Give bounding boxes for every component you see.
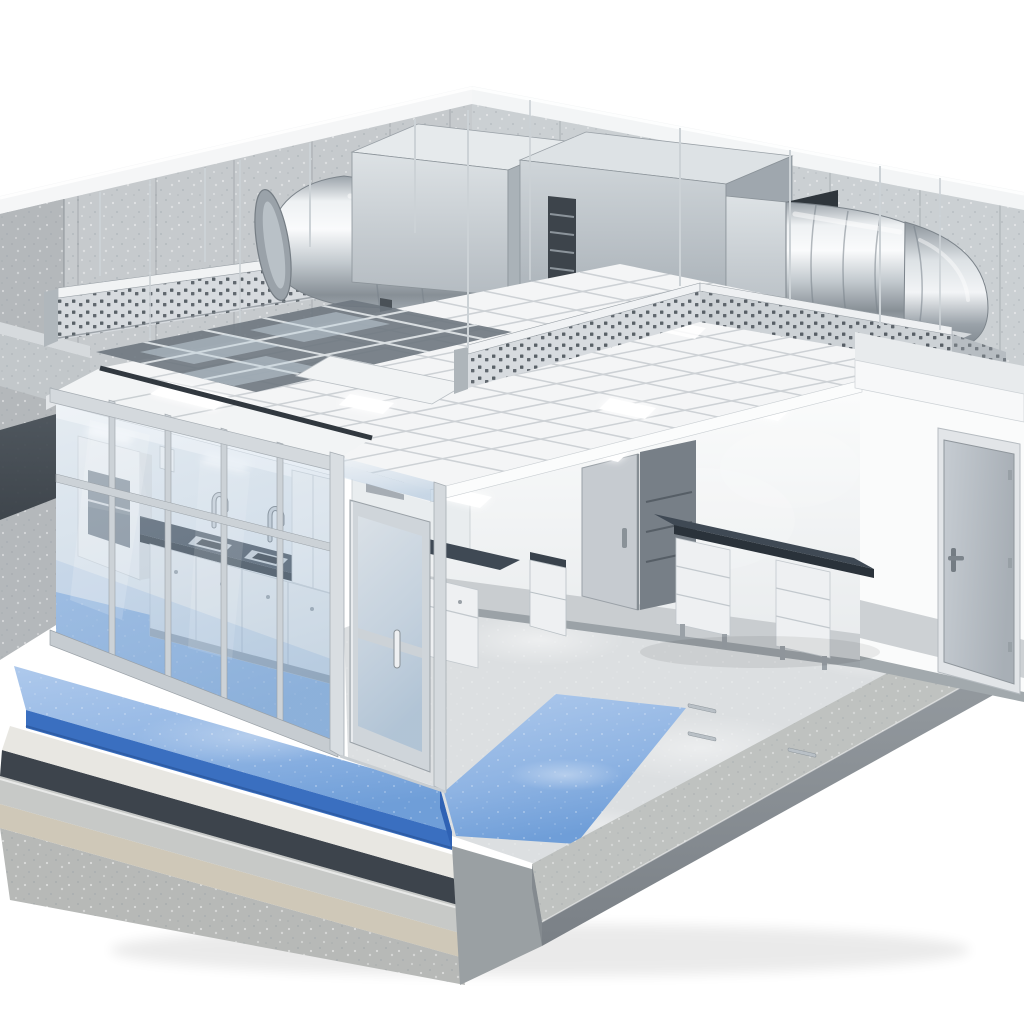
blue-strip-gloss (507, 759, 623, 791)
interior-door-handle (622, 528, 627, 548)
wall-light-glow (720, 428, 860, 508)
building-cutaway (0, 0, 1024, 1024)
door-jamb (434, 482, 446, 792)
knob (458, 600, 462, 604)
exterior-steel-door (938, 428, 1020, 694)
interior-door-leaf (582, 454, 638, 610)
tray-end-cap (454, 347, 468, 394)
glass-door (350, 500, 430, 772)
cleanroom-cutaway-figure (0, 0, 1024, 1024)
tray-end-cap (44, 289, 58, 347)
glass-door-handle (394, 630, 400, 668)
desk-shadow (640, 636, 880, 668)
corner-post (330, 452, 344, 758)
side-cabinet (530, 552, 566, 636)
cabinet-front (530, 560, 566, 636)
pedestal (676, 538, 730, 636)
box-front (352, 152, 508, 296)
door-handle-lever (948, 556, 964, 561)
